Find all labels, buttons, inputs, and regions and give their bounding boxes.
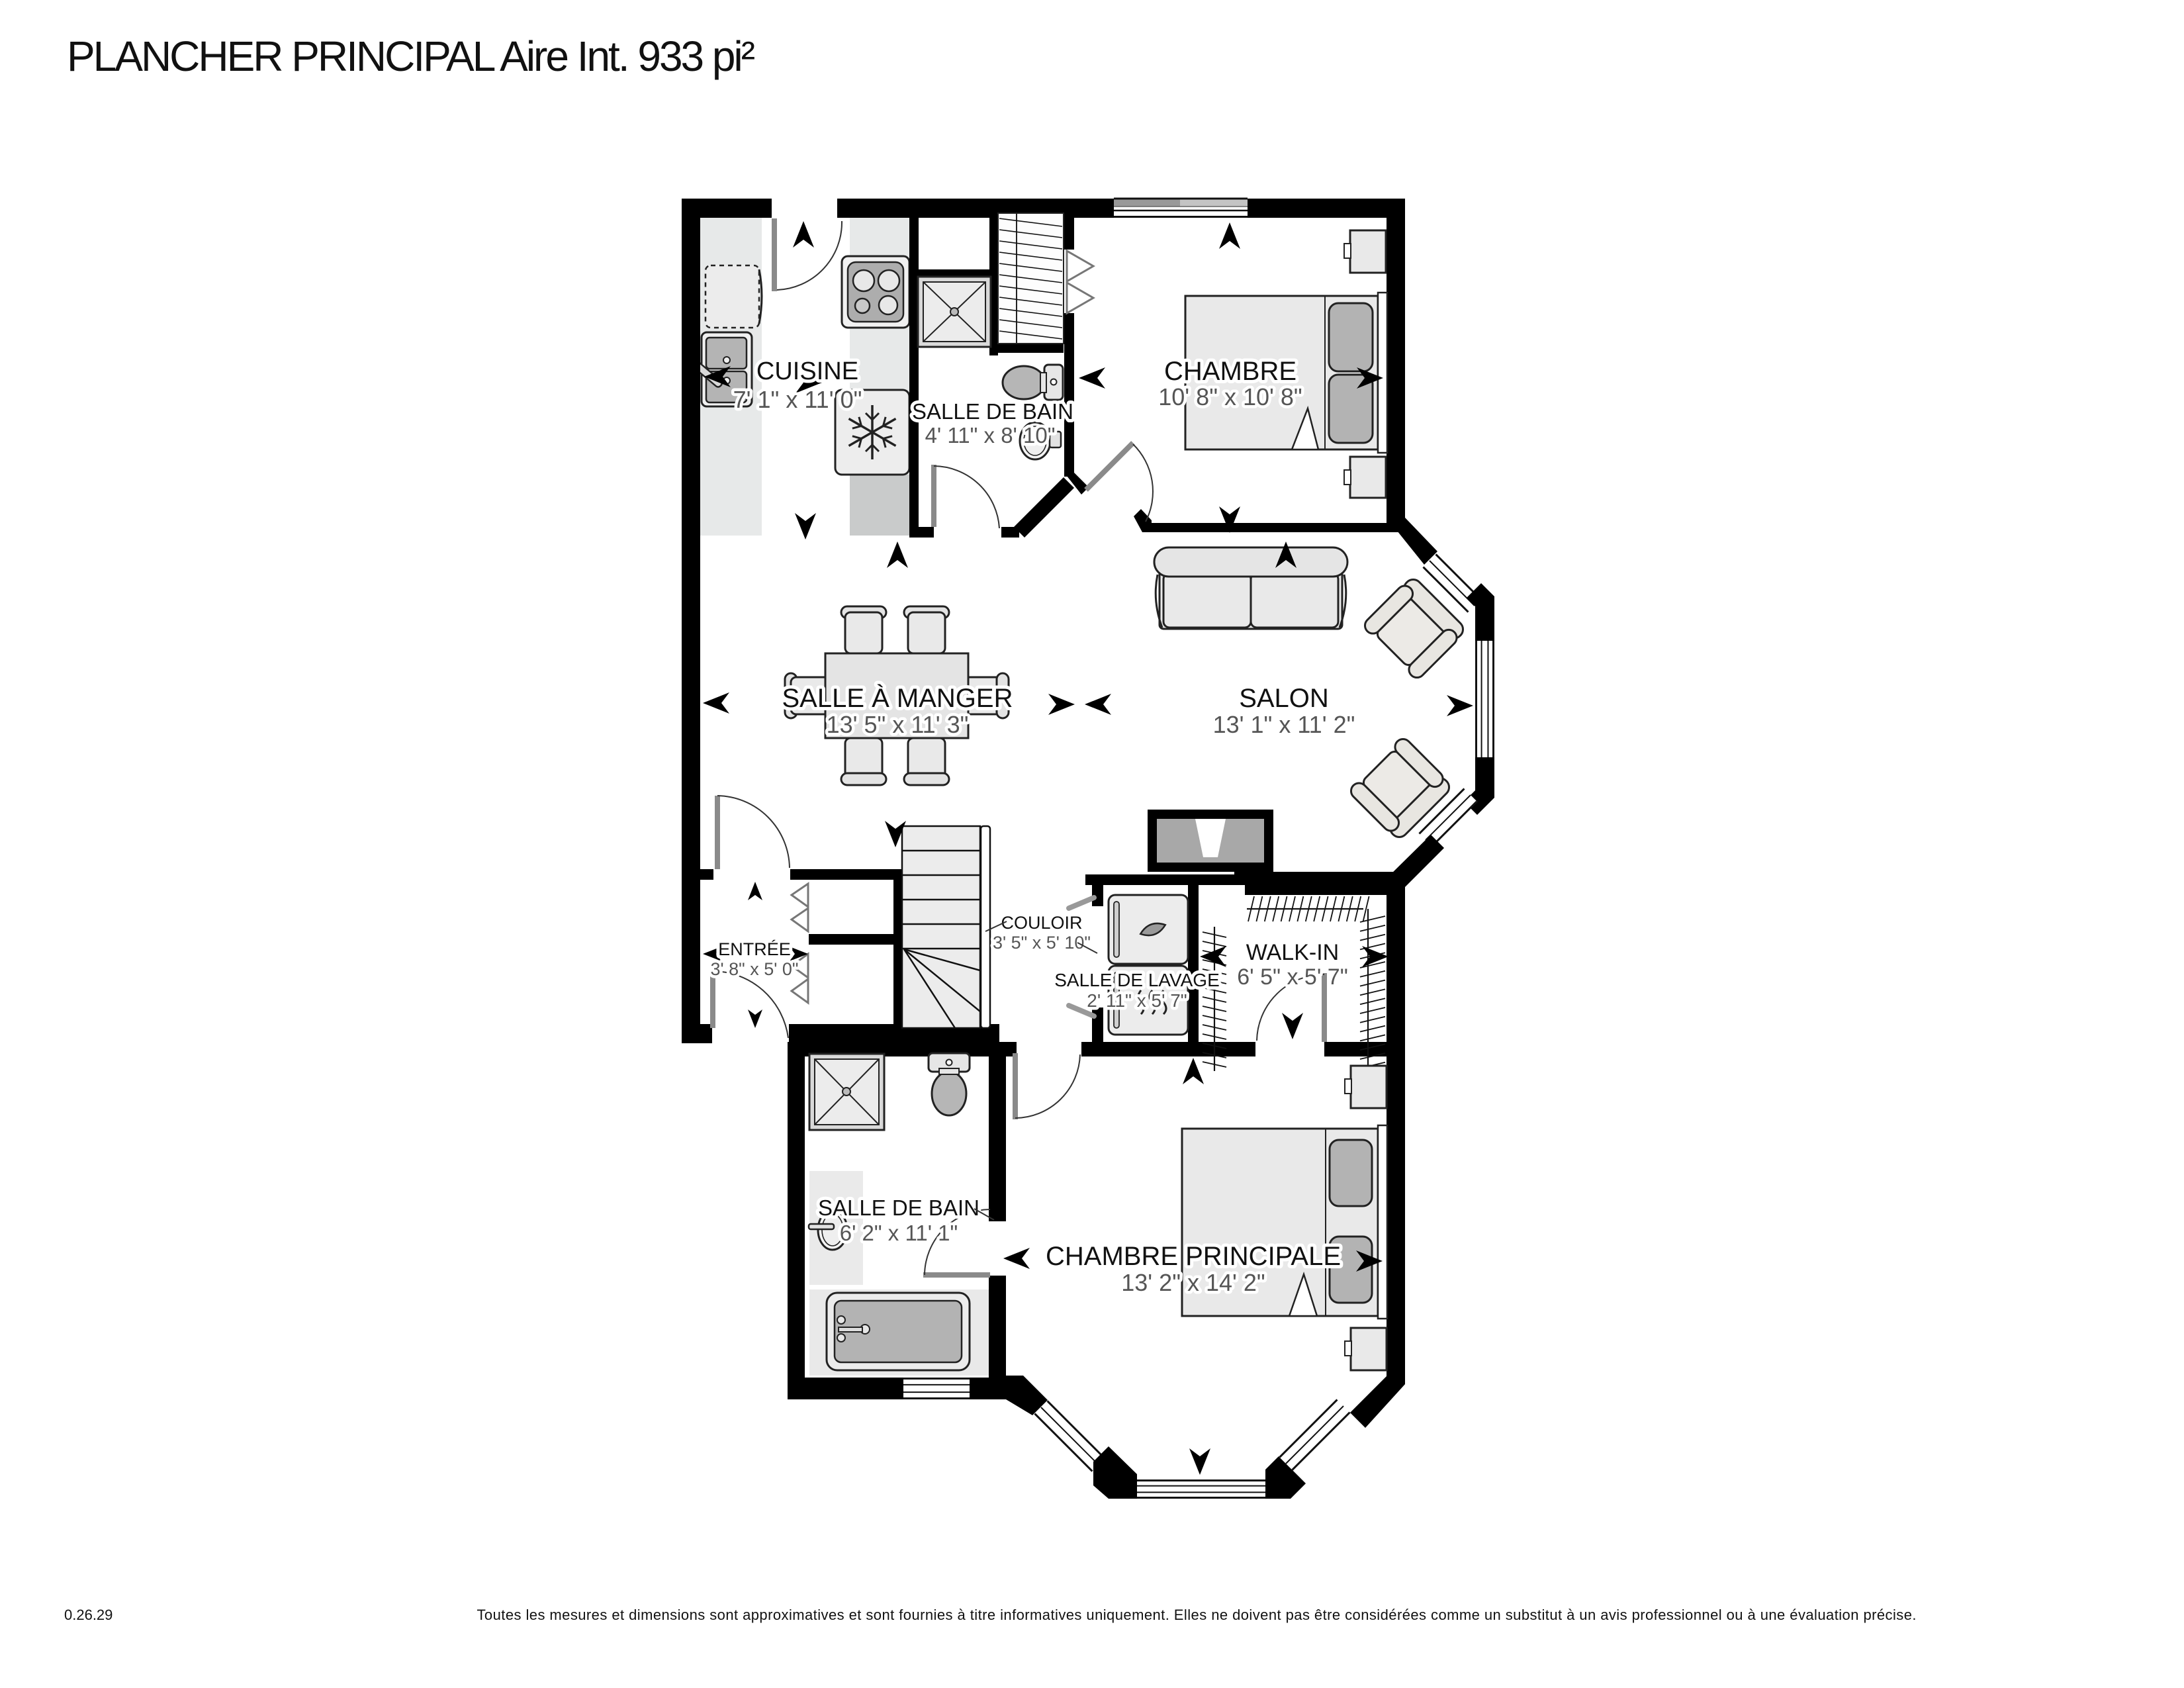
svg-text:WALK-IN: WALK-IN [1246, 940, 1339, 965]
svg-text:13' 5" x 11' 3": 13' 5" x 11' 3" [827, 711, 969, 738]
svg-text:SALLE DE BAIN: SALLE DE BAIN [912, 399, 1073, 424]
svg-text:10' 8" x 10' 8": 10' 8" x 10' 8" [1158, 383, 1302, 410]
svg-text:13' 2" x 14' 2": 13' 2" x 14' 2" [1121, 1269, 1265, 1296]
svg-text:SALLE DE LAVAGE: SALLE DE LAVAGE [1054, 970, 1220, 990]
svg-text:SALLE À MANGER: SALLE À MANGER [782, 683, 1013, 713]
svg-text:PLANCHER PRINCIPAL Aire Int. 9: PLANCHER PRINCIPAL Aire Int. 933 pi² [67, 32, 755, 80]
svg-text:4' 11" x 8' 10": 4' 11" x 8' 10" [925, 423, 1056, 447]
svg-text:CUISINE: CUISINE [756, 357, 858, 385]
svg-text:3' 8" x 5' 0": 3' 8" x 5' 0" [710, 959, 798, 979]
svg-text:7' 1" x 11' 0": 7' 1" x 11' 0" [733, 386, 862, 413]
svg-text:3' 5" x 5' 10": 3' 5" x 5' 10" [993, 933, 1091, 953]
svg-text:2' 11" x 5' 7": 2' 11" x 5' 7" [1087, 990, 1187, 1011]
svg-text:CHAMBRE: CHAMBRE [1164, 357, 1297, 386]
svg-text:0.26.29: 0.26.29 [64, 1607, 113, 1623]
svg-text:CHAMBRE PRINCIPALE: CHAMBRE PRINCIPALE [1046, 1242, 1341, 1271]
svg-text:6' 2" x 11' 1": 6' 2" x 11' 1" [840, 1221, 958, 1245]
svg-text:Toutes les mesures et dimensio: Toutes les mesures et dimensions sont ap… [477, 1607, 1917, 1623]
svg-text:SALON: SALON [1239, 684, 1329, 713]
svg-text:COULOIR: COULOIR [1001, 913, 1082, 933]
svg-text:ENTRÉE: ENTRÉE [718, 939, 791, 959]
svg-text:6' 5" x 5' 7": 6' 5" x 5' 7" [1237, 964, 1348, 990]
svg-text:13' 1" x 11' 2": 13' 1" x 11' 2" [1213, 711, 1355, 738]
svg-text:SALLE DE BAIN: SALLE DE BAIN [818, 1196, 979, 1220]
